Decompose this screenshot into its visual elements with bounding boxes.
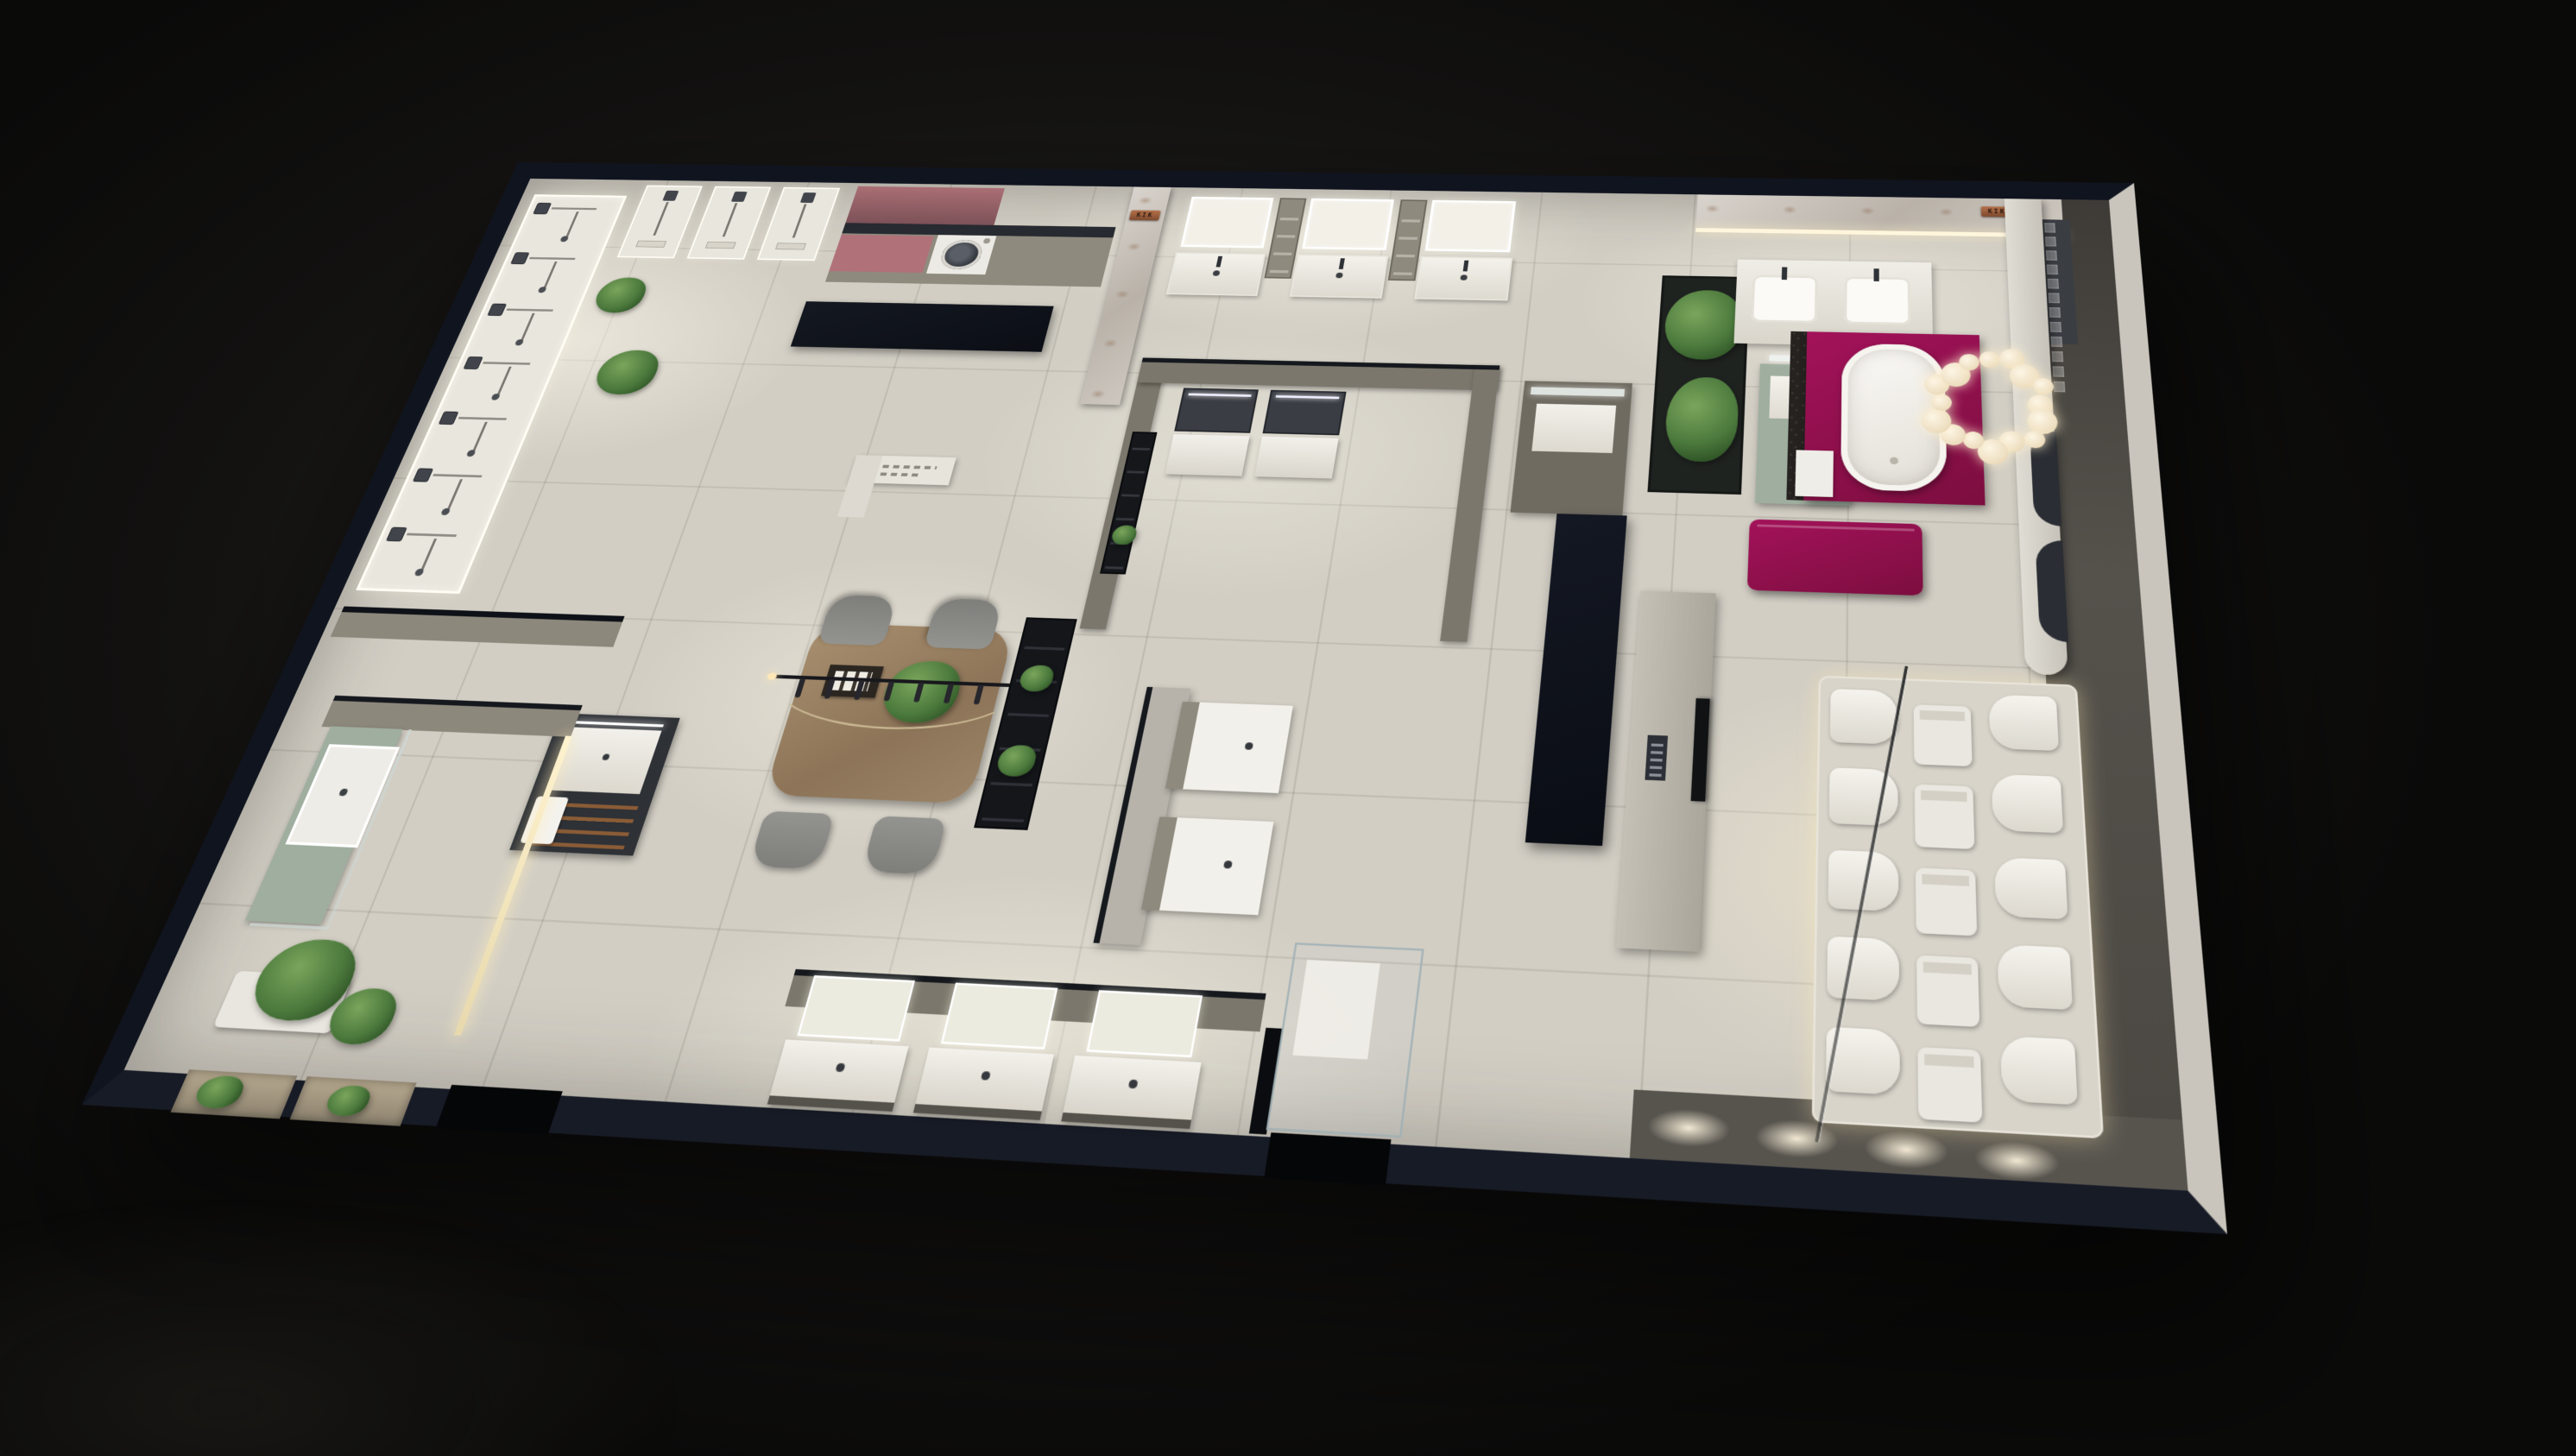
chandelier-bulb-icon: [2033, 378, 2055, 395]
hand-shower-icon: [490, 394, 501, 400]
glass-brick: [2051, 337, 2063, 347]
hand-shower-icon: [414, 569, 425, 577]
glass-brick: [2045, 236, 2056, 246]
smart-toilet-icon: [1916, 955, 1979, 1027]
shower-bar: [472, 422, 488, 451]
vanity-mirror: [797, 975, 915, 1042]
washing-machine-icon: [926, 235, 996, 274]
hand-shower-icon: [440, 508, 451, 515]
led-strip: [576, 721, 664, 727]
glass-brick: [2044, 223, 2055, 232]
toilet-icon: [1830, 689, 1897, 745]
vanity-mirror: [1263, 390, 1347, 436]
toilet-display-platform: [1812, 676, 2104, 1139]
vanity-mirror: [1425, 200, 1517, 252]
window-plant-icon: [191, 1075, 248, 1109]
front-window-opening: [170, 1069, 297, 1119]
vanity-mirror: [941, 983, 1058, 1049]
smart-toilet-icon: [1916, 867, 1977, 936]
shower-bar: [565, 211, 579, 237]
shower-fixture-icon: [687, 186, 772, 260]
front-door-opening: [436, 1085, 563, 1135]
vanity-basin: [1414, 256, 1512, 301]
render-canvas: KIK: [0, 0, 2576, 1456]
shower-bar: [543, 262, 557, 288]
showroom-interior: KIK: [124, 179, 2188, 1191]
hand-shower-icon: [537, 287, 546, 293]
smart-toilet-icon: [1915, 785, 1975, 849]
shower-fixture-icon: [445, 353, 555, 405]
vanity-basin: [913, 1048, 1054, 1120]
shower-head-icon: [387, 528, 406, 541]
shower-bar: [447, 479, 463, 510]
shower-rail: [432, 474, 482, 477]
toilet-icon: [1827, 936, 1899, 1001]
hand-shower-icon: [466, 450, 477, 457]
vanity-basin: [1166, 252, 1266, 296]
vanity-sink: [1751, 275, 1818, 324]
vanity-mirror: [1086, 990, 1203, 1057]
vanity-basin: [767, 1039, 909, 1112]
toilet-icon: [1829, 767, 1898, 826]
toilet-icon: [1994, 857, 2068, 919]
chandelier-bulb-icon: [1979, 351, 1999, 369]
shower-head-icon: [511, 253, 528, 263]
shower-head-icon: [439, 412, 458, 424]
shower-head-icon: [534, 204, 551, 214]
arch-opening: [2035, 539, 2068, 642]
chandelier-bulb-icon: [1963, 432, 1985, 450]
brand-sign: KIK: [1129, 211, 1161, 221]
shower-fixture-icon: [366, 523, 483, 582]
shower-fixture-icon: [517, 199, 621, 246]
smart-toilet-icon: [1917, 1047, 1982, 1123]
shower-bar: [420, 539, 437, 570]
shower-rail: [529, 257, 576, 260]
chandelier-bulb-icon: [1931, 394, 1952, 411]
vanity-unit: [1062, 990, 1213, 1125]
smart-toilet-icon: [1914, 704, 1973, 766]
bubble-ring-chandelier: [1927, 351, 2072, 470]
glass-brick: [2049, 293, 2060, 303]
front-window-opening: [290, 1076, 417, 1126]
vanity-mirror: [1302, 199, 1394, 250]
control-keypad-icon: [1645, 735, 1668, 781]
glass-brick: [2046, 250, 2057, 261]
desk-lettering: [872, 464, 938, 470]
shower-rail: [552, 207, 597, 210]
island-vanity-basin: [1141, 816, 1274, 915]
gray-vanity-unit: [1511, 381, 1632, 515]
vanity-mirror: [1174, 388, 1259, 432]
shower-fixture-icon: [394, 464, 508, 520]
vanity-sink: [1844, 276, 1910, 325]
front-door-opening: [1264, 1132, 1391, 1186]
toilet-icon: [2000, 1036, 2078, 1105]
shower-rail: [506, 308, 553, 311]
showroom-building: KIK: [82, 162, 2227, 1234]
shower-display-wall-top: [617, 186, 842, 262]
shower-bar: [521, 313, 535, 341]
shower-head-icon: [414, 469, 432, 481]
vanity-mirror: [1180, 197, 1273, 249]
vanity-basin: [1254, 437, 1339, 479]
pink-cabinets: [829, 235, 933, 273]
island-vanity-basin: [1165, 702, 1293, 793]
shower-head-icon: [489, 304, 506, 315]
platform-step: [1795, 450, 1834, 497]
vanity-basin: [1061, 1056, 1201, 1129]
hand-shower-icon: [515, 339, 525, 345]
shower-rail: [458, 417, 507, 420]
window-plant-icon: [322, 1085, 374, 1118]
shower-fixture-icon: [470, 300, 578, 350]
magenta-credenza: [1747, 520, 1923, 596]
black-island-counter: [791, 301, 1054, 352]
toilet-icon: [1989, 695, 2060, 751]
glass-shower-enclosure: [1266, 942, 1424, 1138]
glass-brick: [2050, 322, 2061, 332]
chandelier-bulb-icon: [2024, 431, 2046, 449]
shower-bar: [496, 367, 511, 395]
toilet-icon: [1992, 774, 2064, 834]
shower-fixture-icon: [420, 407, 533, 461]
pink-feature-wall: [845, 186, 1004, 225]
glass-brick: [2048, 279, 2059, 289]
vanity-basin: [1165, 434, 1249, 476]
glass-brick: [2049, 307, 2061, 318]
shower-rail: [483, 362, 531, 365]
hand-shower-icon: [559, 236, 569, 242]
shower-fixture-icon: [494, 249, 599, 297]
shower-head-icon: [464, 357, 483, 369]
vanity-unit: [1413, 195, 1520, 308]
glass-brick: [2047, 264, 2058, 274]
vanity-basin: [1290, 254, 1389, 298]
toilet-icon: [1997, 944, 2073, 1010]
shower-rail: [407, 533, 457, 538]
